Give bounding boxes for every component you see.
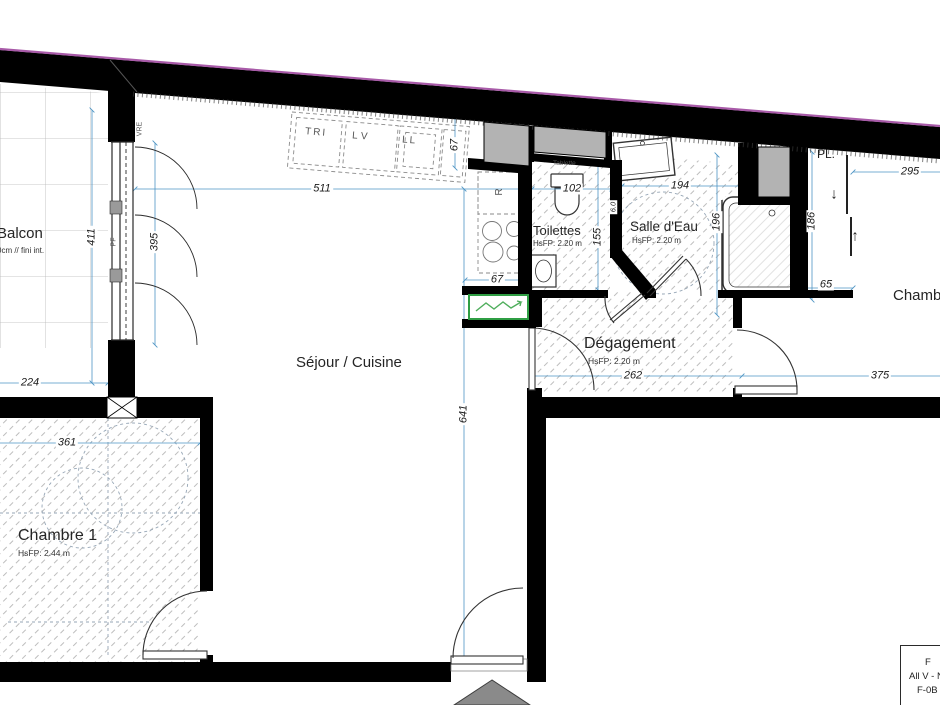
dim-155: 155 [593,226,604,248]
chambre2-door [735,330,797,394]
dim-6: 6.0 [609,200,617,214]
room-label-salle-eau: Salle d'Eau [630,220,698,234]
dim-67-kitchen: 67 [450,137,461,153]
title-block-line2: All V - N [909,671,940,682]
room-label-placard: PL. [817,148,835,160]
window-label-pf: PF [111,238,118,247]
dim-295: 295 [899,167,921,178]
dim-641: 641 [459,403,470,425]
dim-262: 262 [622,371,644,382]
chambre1-hsfp: HsFP: 2.44 m [18,549,70,558]
dim-224: 224 [19,378,41,389]
dim-194: 194 [669,181,691,192]
kitchen-top-counter [287,112,469,182]
arrow-up-icon: ↑ [851,229,859,244]
kitchen-label-tri: TRI [305,127,328,139]
wall-junction-box [107,397,137,418]
shaft-kitchen [484,122,529,166]
room-label-sejour: Séjour / Cuisine [296,355,402,370]
entrance-door [451,588,527,671]
facade-wall [0,50,940,159]
washbasin [613,137,675,181]
shower-tray [723,197,801,293]
hand-basin [531,255,556,287]
salle-eau-hsfp: HsFP: 2.20 m [632,237,681,245]
room-label-toilettes: Toilettes [533,224,581,237]
dim-67-counter: 67 [489,275,505,286]
dim-361: 361 [56,438,78,449]
dim-411: 411 [87,226,98,248]
entrance-arrow [454,680,530,705]
floor-plan: Balcon 0cm // fini int. Séjour / Cuisine… [0,0,940,705]
title-block: F All V - N F-0B [900,645,940,705]
arrow-down-icon: ↓ [830,187,838,202]
dim-102: 102 [561,184,583,195]
dim-375: 375 [869,371,891,382]
electrical-panel [462,286,536,328]
room-label-degagement: Dégagement [584,336,676,352]
window-label-vre: VRE [137,122,144,136]
kitchen-label-ll: LL [402,135,418,146]
balcon-note: 0cm // fini int. [0,247,44,255]
dim-511: 511 [311,184,333,195]
shelf-label: Tablette [553,161,576,168]
kitchen-label-fridge: R [495,188,505,195]
degagement-hsfp: HsFP: 2.20 m [588,357,640,366]
title-block-line1: F [925,657,940,668]
room-label-chambre1: Chambre 1 [18,528,97,544]
toilettes-hsfp: HsFP: 2.20 m [533,240,582,248]
plan-drawing [0,0,940,705]
cooktop [483,222,522,263]
shaft-toilettes [534,126,606,158]
dim-395: 395 [150,231,161,253]
room-label-chambre2: Chambre [893,288,940,303]
dim-186: 186 [807,210,818,232]
kitchen-label-lv: LV [352,131,372,143]
shaft-shower [758,147,790,197]
title-block-line3: F-0B [917,685,940,696]
room-label-balcon: Balcon [0,226,43,241]
dim-65: 65 [818,280,834,291]
dim-196: 196 [712,211,723,233]
